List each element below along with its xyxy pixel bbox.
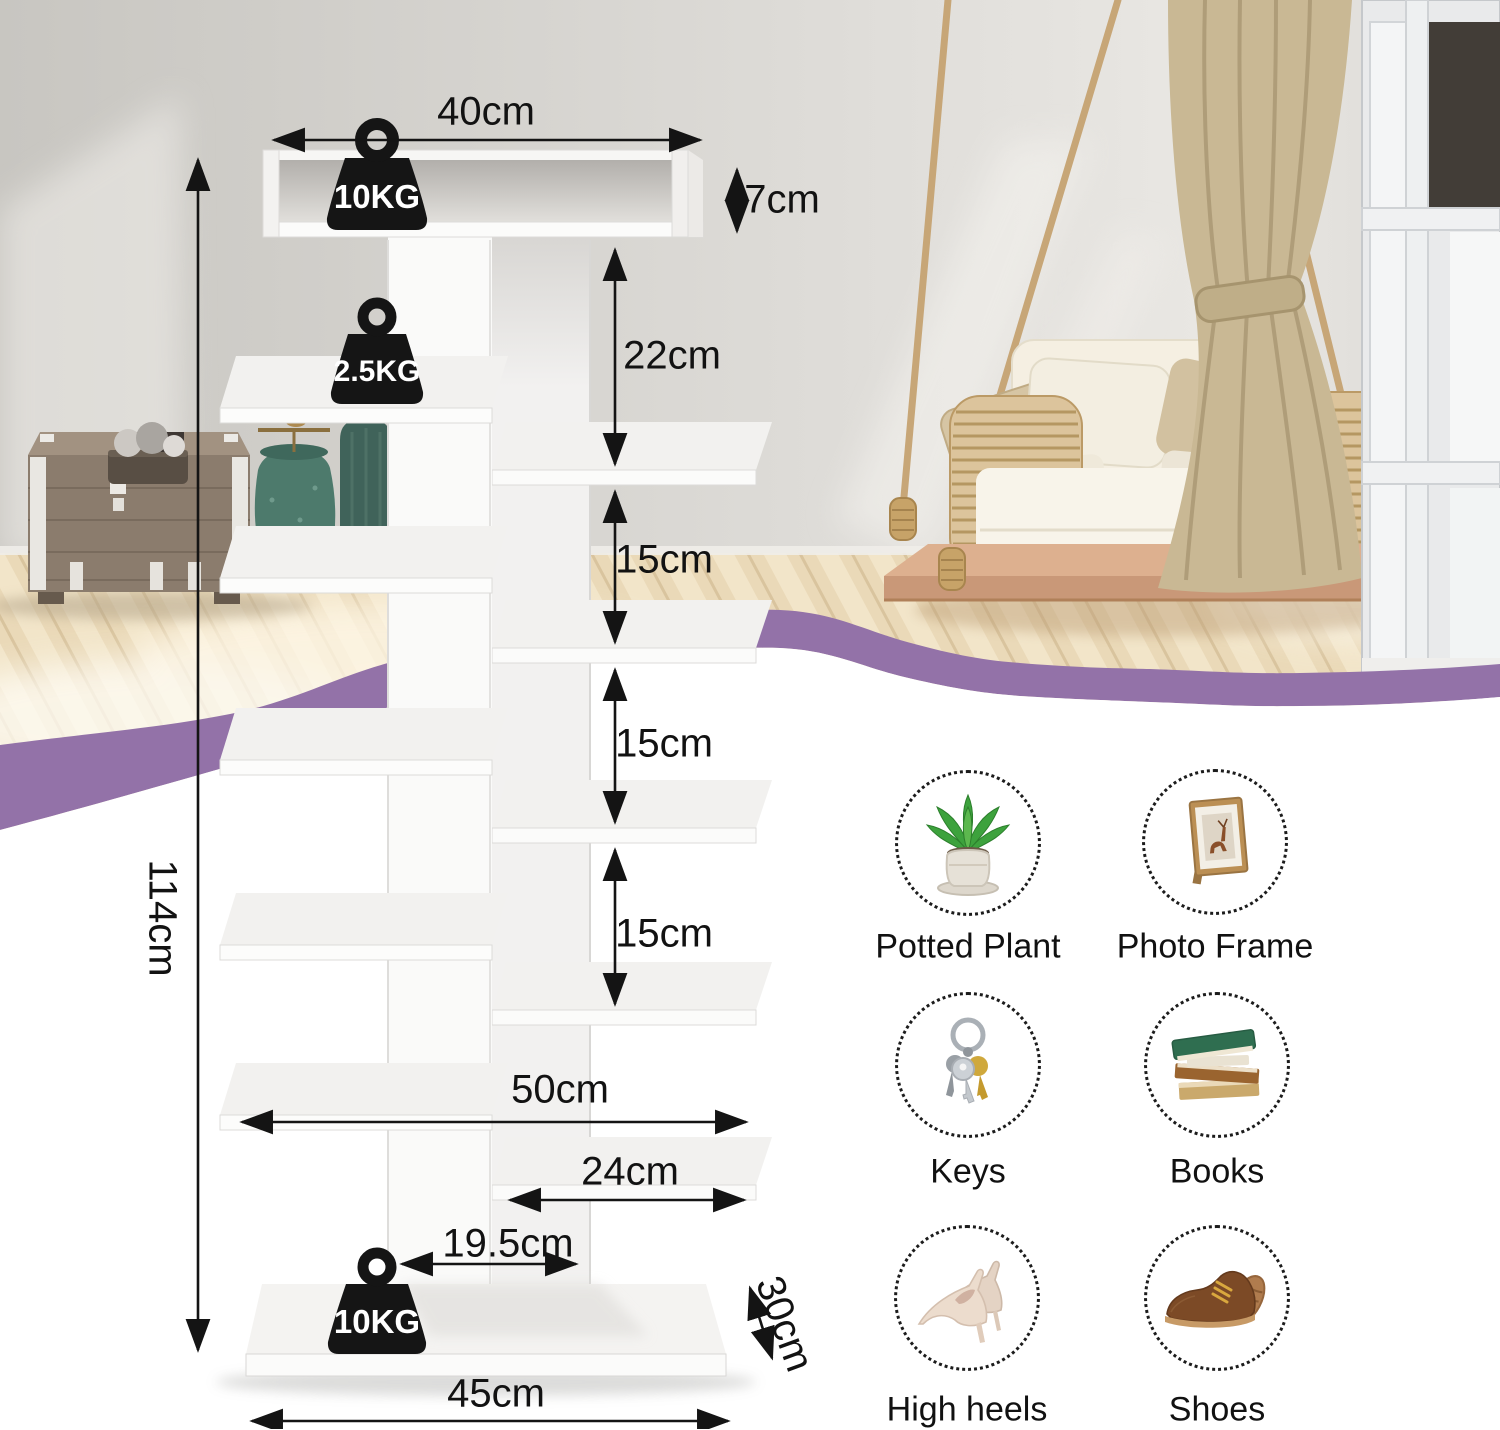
dim-base-clearance: 19.5cm [442,1222,573,1267]
shoes-circle [1144,1225,1290,1371]
photo-frame-circle [1142,769,1288,915]
dim-gap-1: 15cm [615,538,713,583]
weight-top-label: 10KG [334,178,420,216]
dim-total-height: 114cm [140,859,185,976]
books-circle [1144,992,1290,1138]
books-label: Books [1170,1153,1265,1192]
dim-top-width: 40cm [437,90,535,135]
base-platform [246,1284,726,1376]
potted-plant-icon [910,785,1026,901]
photo-frame-icon [1157,784,1273,900]
keys-icon [910,1007,1026,1123]
trunk-right-column [492,237,590,1288]
dim-top-height: 7cm [744,178,820,223]
window [1362,0,1500,700]
photo-frame-label: Photo Frame [1117,928,1314,967]
product-dimension-image: { "page": { "type": "shoe-rack-dimension… [0,0,1500,1429]
high-heels-label: High heels [887,1391,1048,1430]
potted-plant-label: Potted Plant [875,928,1060,967]
books-icon [1159,1007,1275,1123]
potted-plant-circle [895,770,1041,916]
dim-top-gap: 22cm [623,334,721,379]
dim-left-span: 50cm [511,1068,609,1113]
weight-bottom-label: 10KG [334,1303,420,1341]
dim-base-width: 45cm [447,1372,545,1417]
weight-middle-label: 2.5KG [334,355,421,389]
dim-gap-2: 15cm [615,722,713,767]
keys-circle [895,992,1041,1138]
shoes-label: Shoes [1169,1391,1265,1430]
keys-label: Keys [930,1153,1006,1192]
high-heels-circle [894,1225,1040,1371]
shoes-icon [1159,1240,1275,1356]
dim-right-width: 24cm [581,1150,679,1195]
high-heels-icon [909,1240,1025,1356]
dim-gap-3: 15cm [615,912,713,957]
